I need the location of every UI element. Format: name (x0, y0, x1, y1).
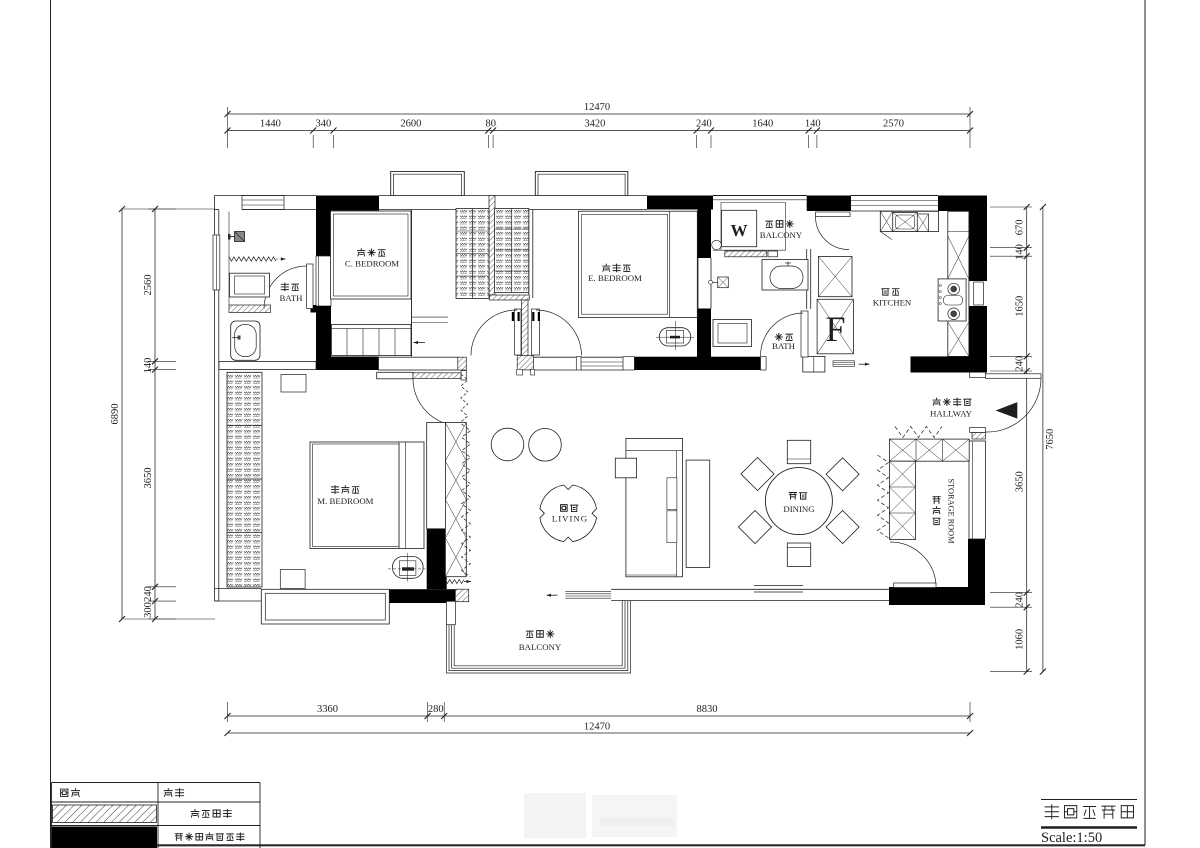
svg-text:3360: 3360 (317, 704, 338, 715)
svg-text:W: W (731, 221, 748, 240)
svg-text:240: 240 (1015, 592, 1026, 608)
svg-text:8830: 8830 (697, 704, 718, 715)
svg-text:670: 670 (1015, 220, 1026, 236)
svg-text:3420: 3420 (584, 119, 605, 130)
svg-text:240: 240 (143, 586, 154, 602)
svg-text:3650: 3650 (143, 468, 154, 489)
svg-text:KITCHEN: KITCHEN (873, 298, 912, 308)
svg-text:DINING: DINING (783, 504, 815, 514)
svg-text:BATH: BATH (772, 341, 796, 351)
svg-text:6890: 6890 (110, 404, 121, 425)
svg-text:1650: 1650 (1015, 296, 1026, 317)
svg-text:7650: 7650 (1045, 429, 1056, 450)
svg-text:1440: 1440 (260, 119, 281, 130)
svg-text:LIVING: LIVING (552, 514, 588, 524)
svg-text:Scale:1:50: Scale:1:50 (1041, 830, 1102, 846)
svg-text:M. BEDROOM: M. BEDROOM (317, 496, 373, 506)
svg-text:C. BEDROOM: C. BEDROOM (345, 259, 399, 269)
svg-text:BATH: BATH (280, 293, 304, 303)
svg-text:240: 240 (696, 119, 712, 130)
svg-text:E. BEDROOM: E. BEDROOM (588, 273, 642, 283)
svg-text:2600: 2600 (400, 119, 421, 130)
svg-text:BALCONY: BALCONY (760, 230, 803, 240)
svg-text:12470: 12470 (584, 722, 610, 733)
svg-text:1640: 1640 (752, 119, 773, 130)
svg-text:BALCONY: BALCONY (519, 642, 562, 652)
svg-text:80: 80 (485, 119, 496, 130)
svg-text:2560: 2560 (143, 275, 154, 296)
svg-text:340: 340 (316, 119, 332, 130)
svg-text:140: 140 (143, 358, 154, 374)
svg-text:2570: 2570 (883, 119, 904, 130)
svg-text:HALLWAY: HALLWAY (930, 409, 973, 419)
svg-text:12470: 12470 (584, 102, 610, 113)
svg-text:140: 140 (1015, 244, 1026, 260)
svg-text:STORAGE ROOM: STORAGE ROOM (947, 478, 956, 544)
svg-text:300: 300 (143, 602, 154, 618)
svg-text:1060: 1060 (1015, 629, 1026, 650)
svg-text:3650: 3650 (1015, 471, 1026, 492)
svg-text:140: 140 (805, 119, 821, 130)
svg-text:280: 280 (428, 704, 444, 715)
svg-text:F: F (825, 309, 845, 349)
svg-text:240: 240 (1015, 356, 1026, 372)
